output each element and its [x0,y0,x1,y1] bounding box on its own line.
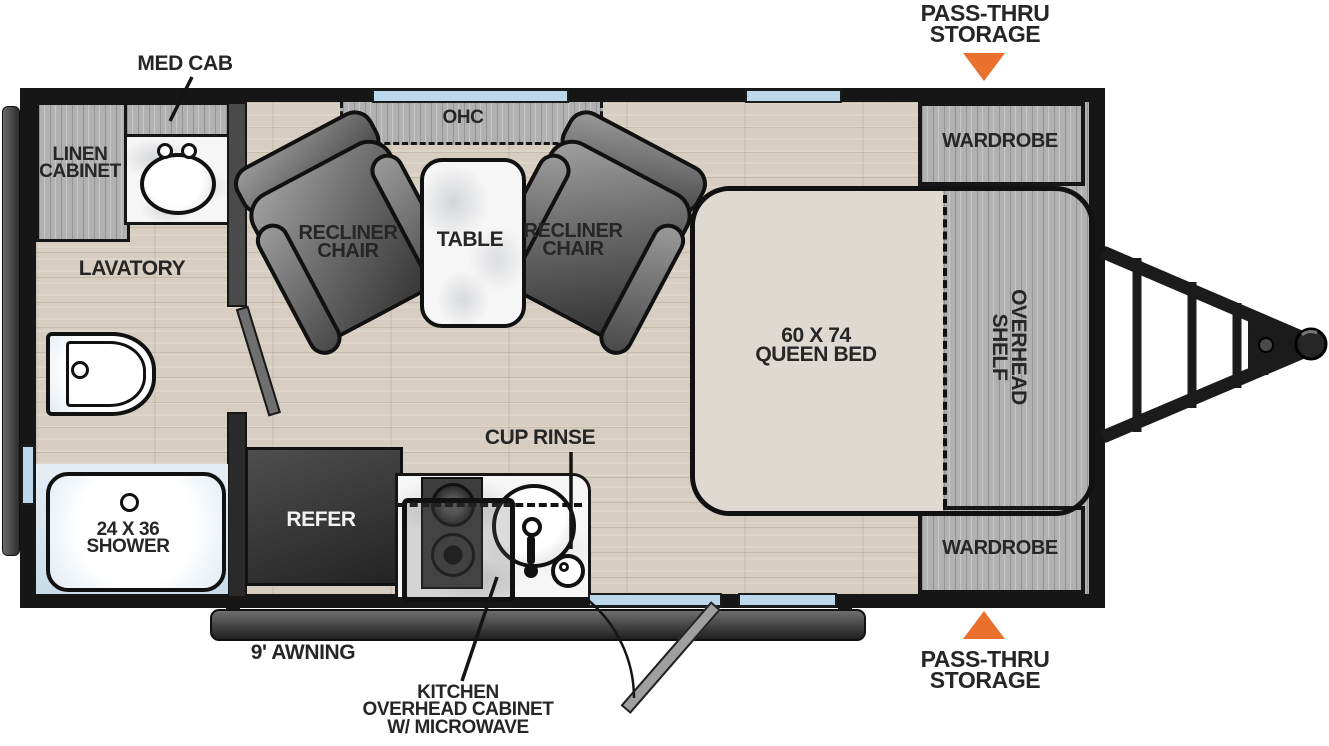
table-label: TABLE [430,230,510,249]
cup-rinse-outlet [551,554,585,588]
floorplan-canvas: PASS-THRU STORAGE PASS-THRU STORAGE MED … [0,0,1329,746]
awning-label: 9' AWNING [238,643,368,662]
kitchen-faucet-stem [527,536,535,564]
cup-rinse-center [559,562,569,572]
toilet [46,332,156,416]
linen-cabinet-label: LINEN CABINET [38,146,122,181]
faucet-knob-left [157,143,173,159]
window-rear [21,445,35,505]
pass-thru-label-bottom: PASS-THRU STORAGE [915,649,1055,691]
kitchen-faucet-base [524,564,538,578]
shower-label: 24 X 36 SHOWER [73,521,183,556]
wardrobe-top-label: WARDROBE [928,132,1072,150]
bed-head-dashed-line [943,195,947,507]
ohc-label: OHC [428,109,498,126]
bed-label: 60 X 74 QUEEN BED [740,326,892,365]
lavatory-label: LAVATORY [62,259,202,278]
recliner-left-label: RECLINER CHAIR [292,224,404,261]
refer-label: REFER [271,510,371,529]
shower-drain [120,493,139,512]
window-top-right [745,89,842,103]
kitchen-ohc-outline [402,498,515,602]
faucet-knob-right [181,143,197,159]
overhead-shelf-label: OVERHEAD SHELF [950,288,1068,406]
wardrobe-bottom-label: WARDROBE [928,539,1072,557]
bathroom-sink [140,153,216,215]
window-bottom [738,593,837,607]
pass-thru-arrow-bottom [963,611,1005,639]
kitchen-ohc-label: KITCHEN OVERHEAD CABINET W/ MICROWAVE [330,684,586,736]
hitch-coupler [1296,329,1326,359]
rear-bumper [2,106,20,556]
toilet-flush [71,361,89,379]
hitch-jack-plate [1248,312,1307,378]
bathroom-wall-lower [227,412,247,598]
entry-door-opening [588,593,722,607]
cup-rinse-label: CUP RINSE [480,428,600,447]
pass-thru-label-top: PASS-THRU STORAGE [915,3,1055,45]
recliner-right-label: RECLINER CHAIR [517,222,629,259]
med-cab-label: MED CAB [130,54,240,73]
awning-bar [210,609,866,641]
hitch-frame [1103,252,1326,437]
window-top-left [372,89,569,103]
kitchen-faucet-knob [522,517,542,537]
pass-thru-arrow-top [963,53,1005,81]
